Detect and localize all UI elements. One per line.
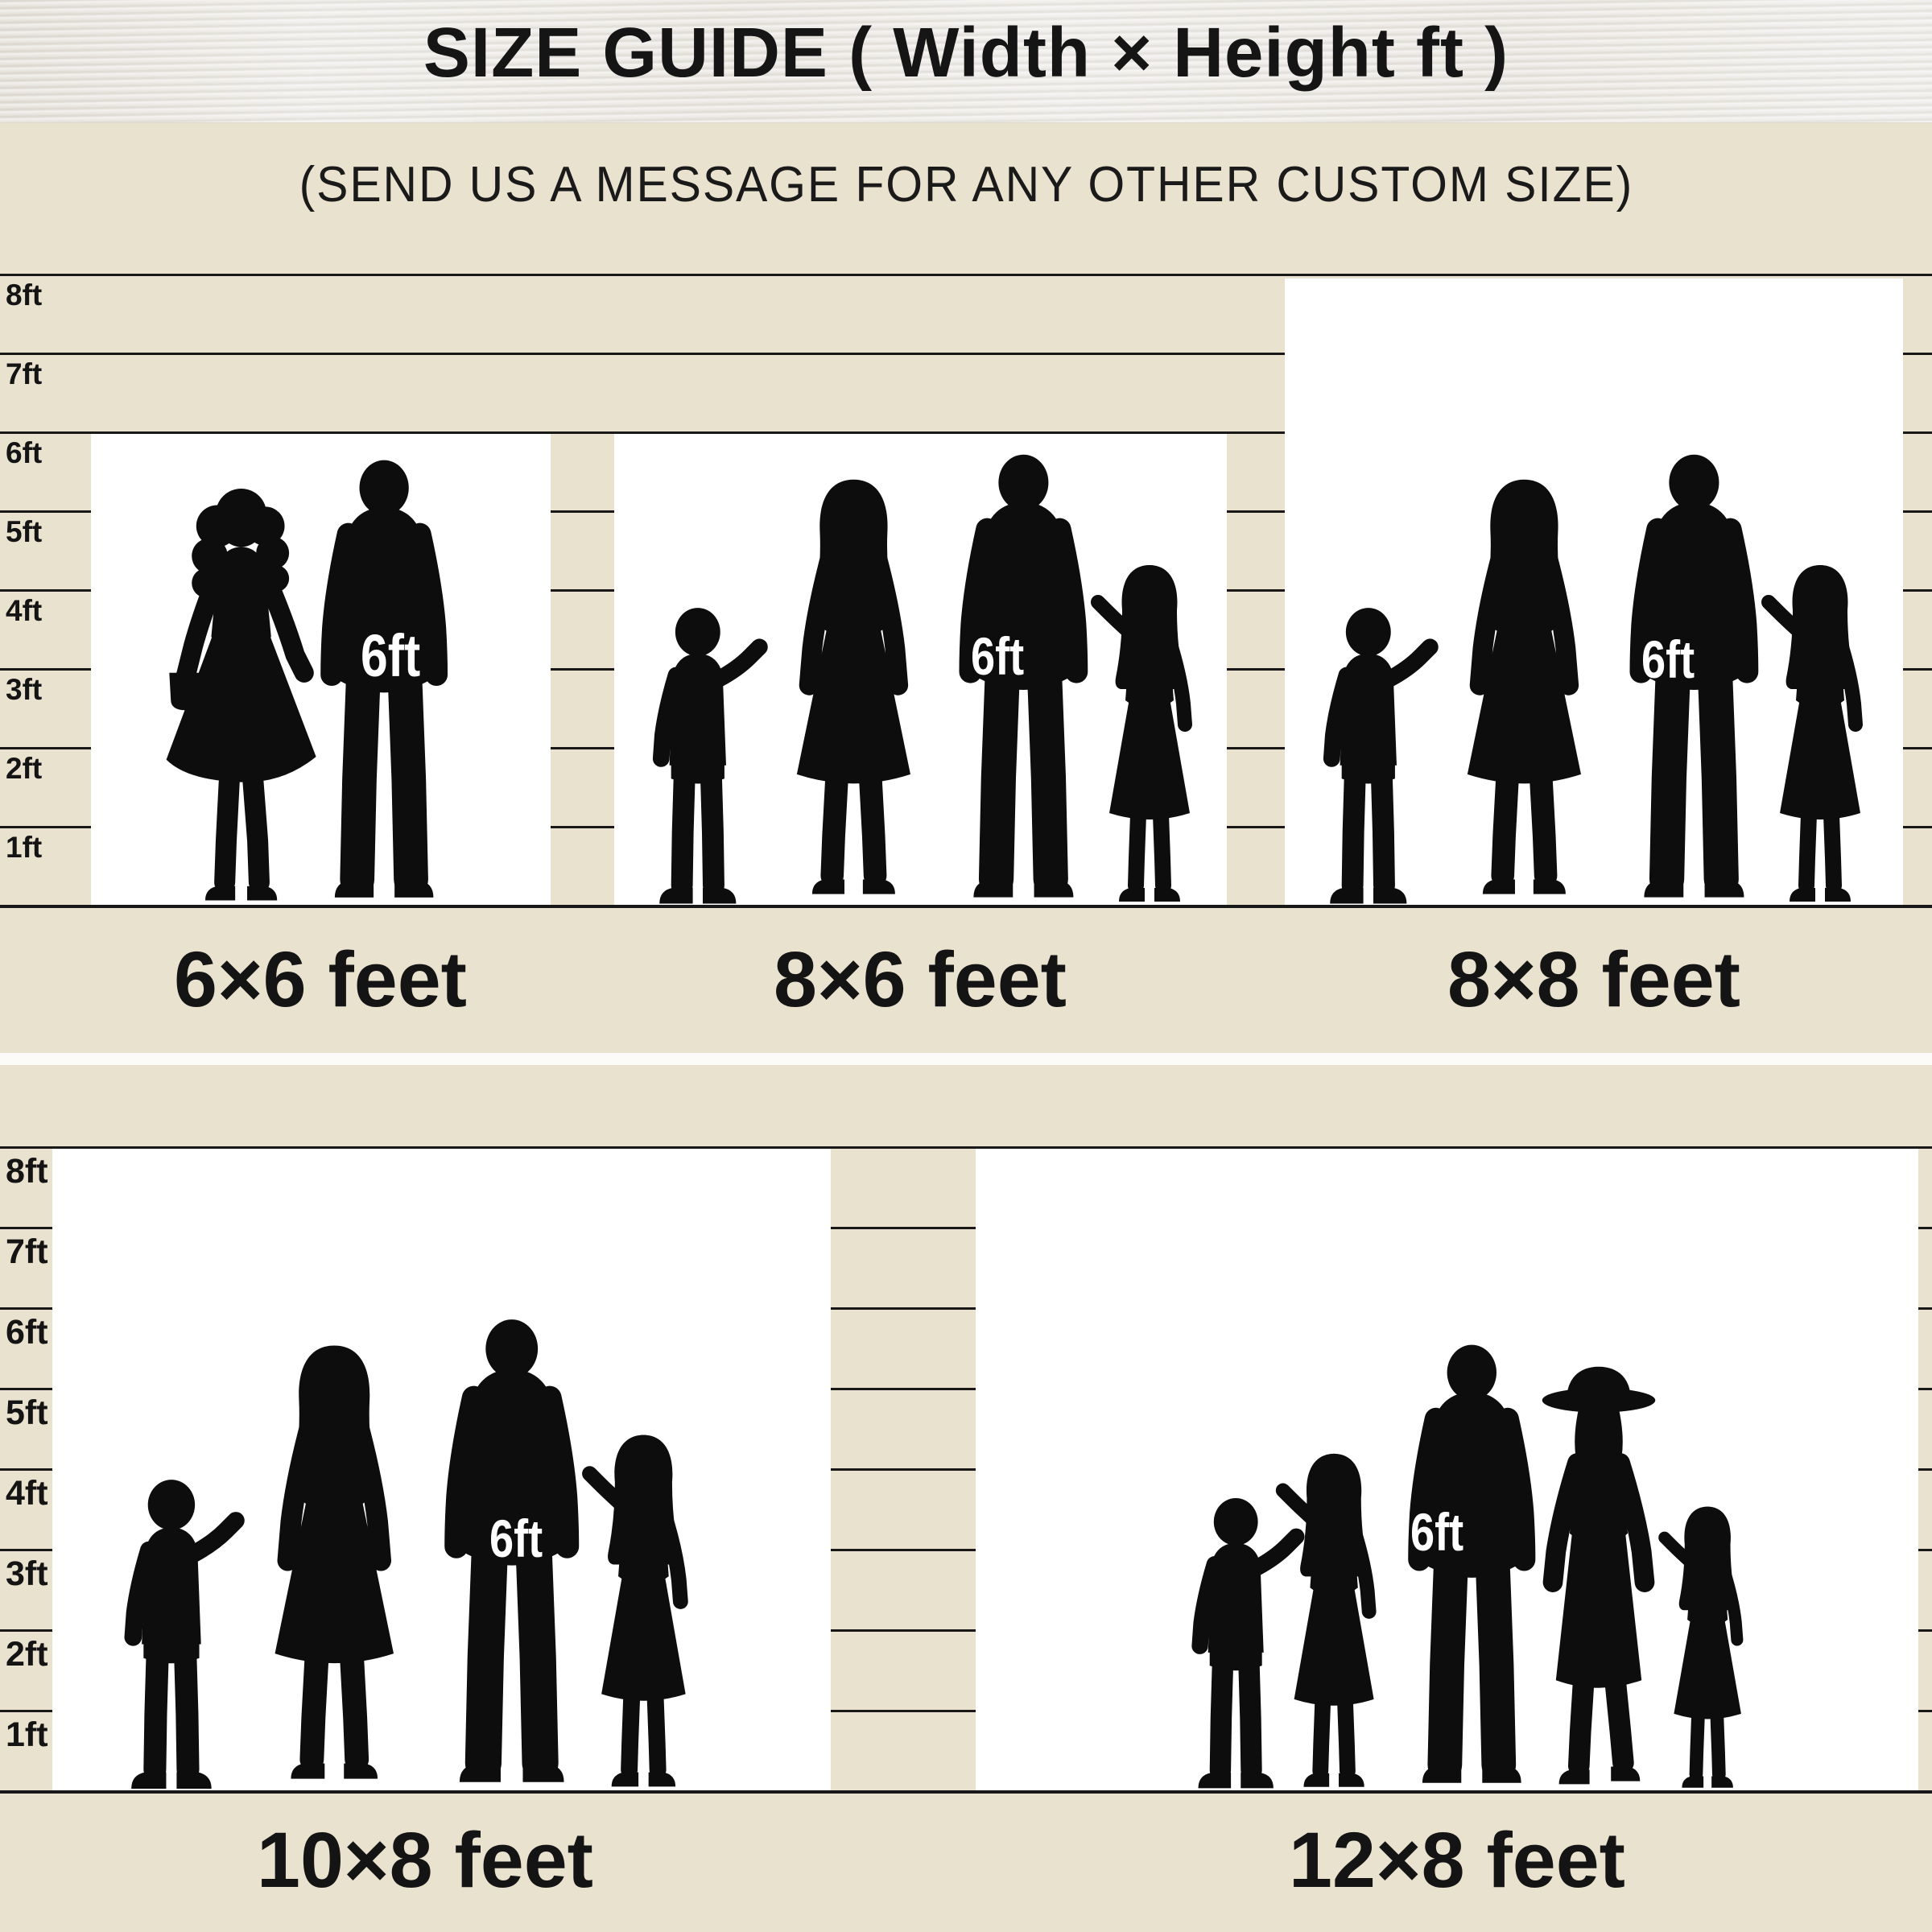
size-label-12x8: 12×8 feet bbox=[1289, 1821, 1625, 1899]
ruler-label-bottom-5ft: 5ft bbox=[6, 1396, 48, 1430]
ruler-label-bottom-1ft: 1ft bbox=[6, 1718, 48, 1752]
ruler-label-top-7ft: 7ft bbox=[6, 359, 42, 389]
ruler-label-bottom-8ft: 8ft bbox=[6, 1154, 48, 1189]
ruler-label-top-5ft: 5ft bbox=[6, 517, 42, 547]
size-label-10x8: 10×8 feet bbox=[257, 1821, 593, 1899]
ruler-label-top-6ft: 6ft bbox=[6, 438, 42, 468]
ruler-label-bottom-6ft: 6ft bbox=[6, 1315, 48, 1350]
family-silhouette-10x8 bbox=[97, 1312, 728, 1817]
ruler-label-top-8ft: 8ft bbox=[6, 280, 42, 310]
height-marker-8x8: 6ft bbox=[1641, 633, 1695, 686]
height-marker-8x6: 6ft bbox=[971, 630, 1024, 683]
couple-silhouette-6x6 bbox=[137, 440, 523, 923]
ruler-label-top-3ft: 3ft bbox=[6, 675, 42, 704]
size-label-8x8: 8×8 feet bbox=[1447, 940, 1740, 1018]
size-guide-page: SIZE GUIDE ( Width × Height ft ) (SEND U… bbox=[0, 0, 1932, 1932]
height-marker-12x8: 6ft bbox=[1410, 1505, 1463, 1558]
ruler-label-bottom-4ft: 4ft bbox=[6, 1476, 48, 1511]
section-divider bbox=[0, 1053, 1932, 1065]
height-marker-6x6: 6ft bbox=[361, 626, 420, 686]
page-title: SIZE GUIDE ( Width × Height ft ) bbox=[0, 13, 1932, 93]
height-marker-10x8: 6ft bbox=[489, 1512, 543, 1565]
custom-size-note-text: (SEND US A MESSAGE FOR ANY OTHER CUSTOM … bbox=[299, 156, 1633, 213]
ruler-label-bottom-3ft: 3ft bbox=[6, 1557, 48, 1591]
size-label-6x6: 6×6 feet bbox=[174, 940, 467, 1018]
ruler-label-bottom-7ft: 7ft bbox=[6, 1235, 48, 1269]
ruler-label-bottom-2ft: 2ft bbox=[6, 1637, 48, 1672]
family-silhouette-12x8 bbox=[1159, 1328, 1843, 1811]
custom-size-note: (SEND US A MESSAGE FOR ANY OTHER CUSTOM … bbox=[0, 156, 1932, 213]
ruler-label-top-1ft: 1ft bbox=[6, 832, 42, 862]
ruler-line-top-8ft bbox=[0, 274, 1932, 276]
family-silhouette-8x8 bbox=[1297, 448, 1901, 931]
size-label-8x6: 8×6 feet bbox=[774, 940, 1067, 1018]
family-silhouette-8x6 bbox=[626, 448, 1230, 931]
wood-header: SIZE GUIDE ( Width × Height ft ) bbox=[0, 0, 1932, 123]
ruler-label-top-2ft: 2ft bbox=[6, 753, 42, 783]
ruler-label-top-4ft: 4ft bbox=[6, 596, 42, 625]
